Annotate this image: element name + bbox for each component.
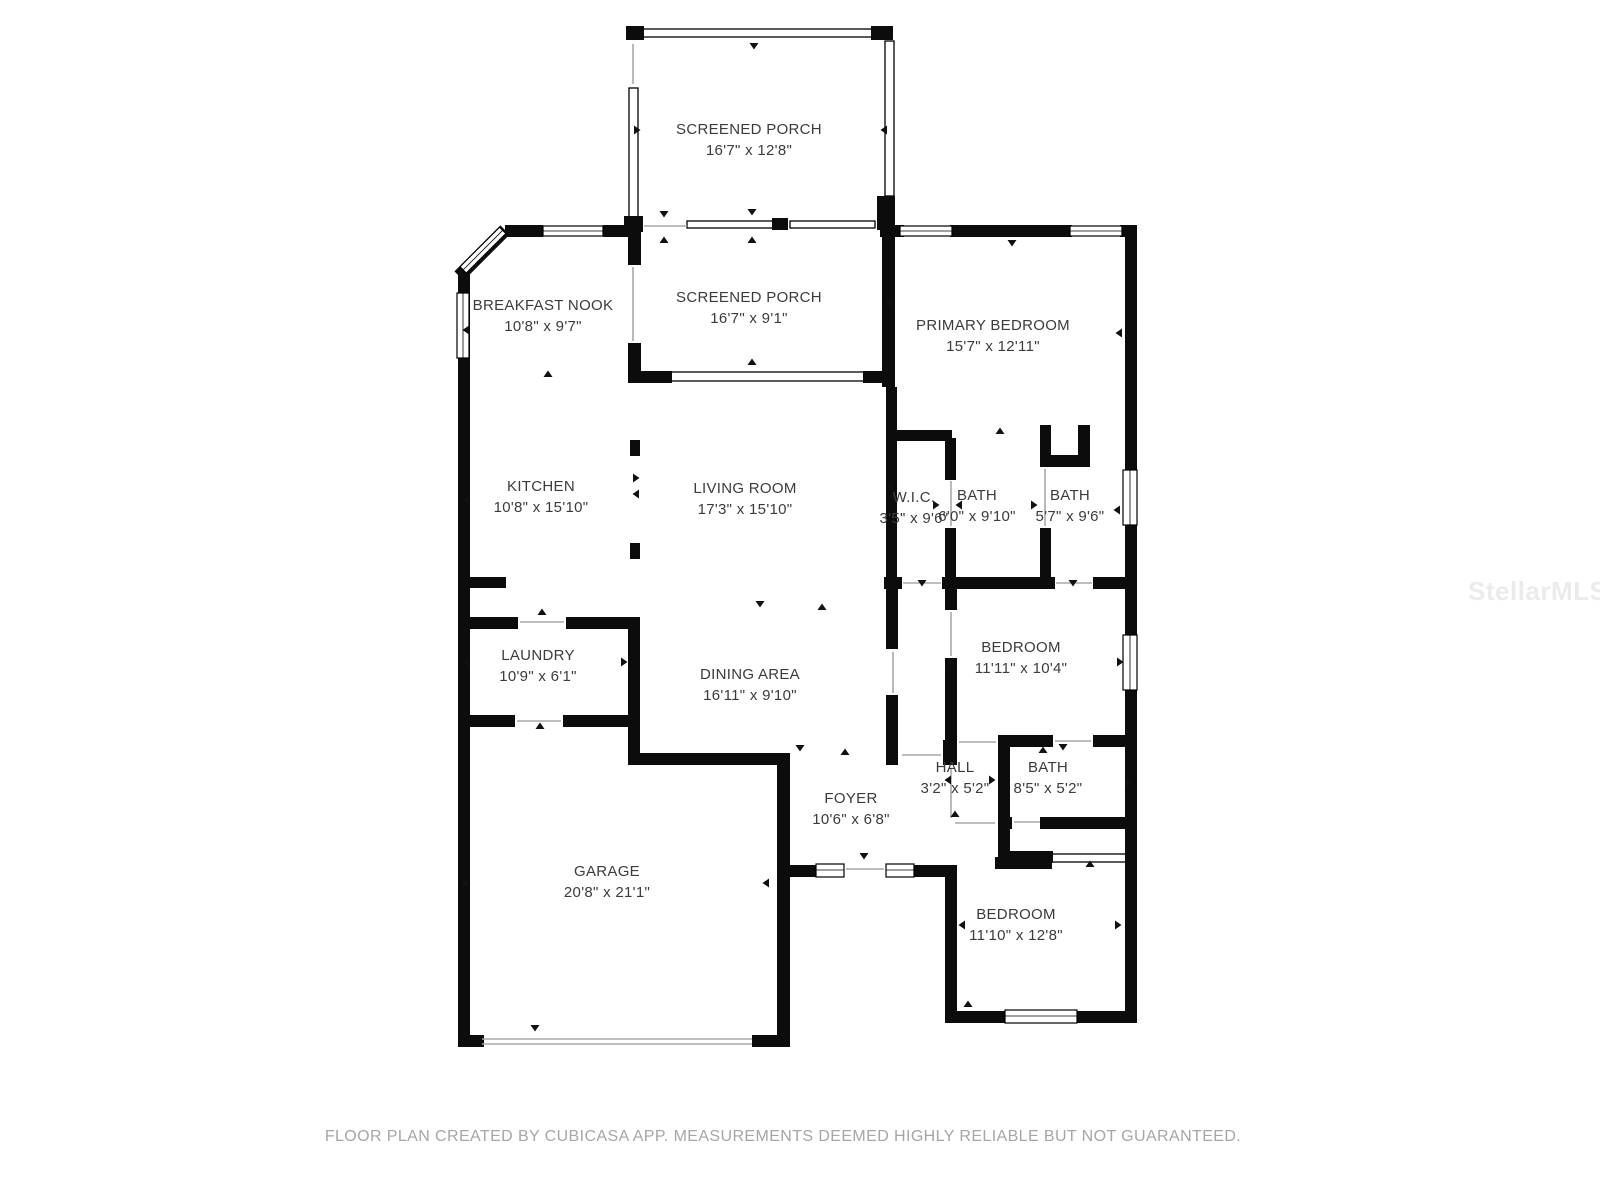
room-name: KITCHEN [507, 478, 575, 495]
room-dims: 5'7" x 9'6" [1036, 506, 1105, 527]
room-label-breakfast-nook: BREAKFAST NOOK 10'8" x 9'7" [473, 295, 614, 337]
room-name: LIVING ROOM [693, 480, 796, 497]
room-dims: 16'11" x 9'10" [700, 685, 800, 706]
room-label-kitchen: KITCHEN 10'8" x 15'10" [494, 476, 589, 518]
room-dims: 6'0" x 9'10" [938, 506, 1016, 527]
room-label-screened-porch-top: SCREENED PORCH 16'7" x 12'8" [676, 119, 822, 161]
room-dims: 17'3" x 15'10" [693, 499, 796, 520]
room-label-bedroom-middle: BEDROOM 11'11" x 10'4" [975, 637, 1068, 679]
room-dims: 10'9" x 6'1" [499, 666, 577, 687]
room-name: GARAGE [574, 863, 640, 880]
room-dims: 10'6" x 6'8" [812, 809, 890, 830]
room-name: HALL [936, 759, 975, 776]
room-dims: 3'2" x 5'2" [921, 778, 990, 799]
stellar-mls-watermark: StellarMLS [1468, 576, 1600, 607]
room-name: SCREENED PORCH [676, 289, 822, 306]
room-label-primary-bedroom: PRIMARY BEDROOM 15'7" x 12'11" [916, 315, 1070, 357]
room-label-bath-primary: BATH 6'0" x 9'10" [938, 485, 1016, 527]
floorplan-drawing [0, 0, 1600, 1200]
room-name: LAUNDRY [501, 647, 575, 664]
room-name: W.I.C. [893, 489, 936, 506]
room-label-foyer: FOYER 10'6" x 6'8" [812, 788, 890, 830]
room-label-bath-guest: BATH 5'7" x 9'6" [1036, 485, 1105, 527]
room-name: BREAKFAST NOOK [473, 297, 614, 314]
room-name: BATH [1050, 487, 1090, 504]
room-label-hall: HALL 3'2" x 5'2" [921, 757, 990, 799]
room-dims: 16'7" x 12'8" [676, 140, 822, 161]
room-name: BATH [957, 487, 997, 504]
room-label-dining-area: DINING AREA 16'11" x 9'10" [700, 664, 800, 706]
floorplan-page: SCREENED PORCH 16'7" x 12'8" BREAKFAST N… [0, 0, 1600, 1200]
diagonal-window [460, 227, 506, 273]
room-name: DINING AREA [700, 666, 800, 683]
door-markers [463, 43, 1132, 1032]
footer-disclaimer: FLOOR PLAN CREATED BY CUBICASA APP. MEAS… [325, 1128, 1241, 1146]
room-dims: 8'5" x 5'2" [1014, 778, 1083, 799]
room-dims: 15'7" x 12'11" [916, 336, 1070, 357]
room-dims: 16'7" x 9'1" [676, 308, 822, 329]
room-label-bedroom-bottom: BEDROOM 11'10" x 12'8" [969, 904, 1063, 946]
room-name: PRIMARY BEDROOM [916, 317, 1070, 334]
room-label-laundry: LAUNDRY 10'9" x 6'1" [499, 645, 577, 687]
room-name: FOYER [824, 790, 877, 807]
room-name: BEDROOM [981, 639, 1061, 656]
room-dims: 11'11" x 10'4" [975, 658, 1068, 679]
room-dims: 11'10" x 12'8" [969, 925, 1063, 946]
room-dims: 10'8" x 15'10" [494, 497, 589, 518]
room-label-garage: GARAGE 20'8" x 21'1" [564, 861, 650, 903]
room-label-living-room: LIVING ROOM 17'3" x 15'10" [693, 478, 796, 520]
room-label-screened-porch-mid: SCREENED PORCH 16'7" x 9'1" [676, 287, 822, 329]
room-dims: 10'8" x 9'7" [473, 316, 614, 337]
room-dims: 20'8" x 21'1" [564, 882, 650, 903]
room-name: SCREENED PORCH [676, 121, 822, 138]
room-name: BATH [1028, 759, 1068, 776]
room-label-bath-hall: BATH 8'5" x 5'2" [1014, 757, 1083, 799]
room-name: BEDROOM [976, 906, 1056, 923]
